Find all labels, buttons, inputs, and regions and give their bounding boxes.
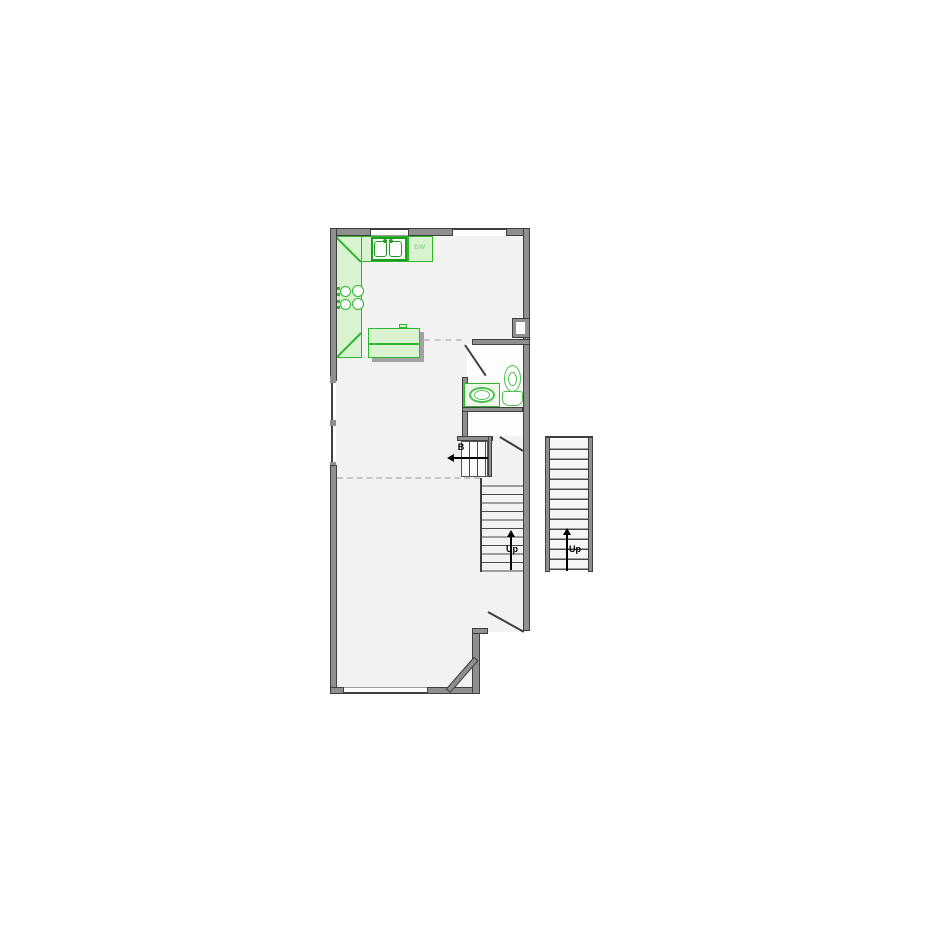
dishwasher-label: DW bbox=[407, 245, 433, 252]
window-mullion bbox=[330, 376, 336, 383]
cooktop-burner bbox=[352, 298, 364, 310]
main-stair-treads bbox=[481, 478, 523, 573]
exterior-wall-bottom bbox=[330, 687, 344, 694]
cooktop-burner bbox=[352, 285, 364, 297]
island-counter-split bbox=[369, 343, 419, 345]
chase-bump-out-inner bbox=[516, 322, 525, 334]
window-icon bbox=[371, 228, 408, 236]
cooktop-knob-icon bbox=[337, 287, 340, 290]
sink-faucet-icon bbox=[389, 239, 393, 243]
cooktop-burner bbox=[340, 286, 351, 297]
exterior-wall-left bbox=[330, 465, 337, 694]
bathroom-wall-top bbox=[472, 339, 530, 345]
exterior-stair-top-line bbox=[545, 436, 593, 438]
exterior-stair-wall-right bbox=[588, 437, 593, 572]
main-stair-up-arrow-head-icon bbox=[507, 530, 515, 537]
basement-label: B bbox=[455, 442, 467, 452]
kitchen-dining-divider bbox=[424, 339, 462, 341]
toilet-tank-lid-inner bbox=[508, 372, 517, 386]
sink-faucet-icon bbox=[383, 239, 387, 243]
entry-porch-exterior bbox=[480, 632, 523, 687]
dining-living-divider bbox=[337, 477, 480, 479]
cooktop-knob-icon bbox=[337, 306, 340, 309]
sink-basin-right bbox=[389, 241, 402, 257]
vanity-sink-basin-inner bbox=[474, 390, 490, 400]
sink-basin-left bbox=[374, 241, 387, 257]
exterior-wall-right bbox=[523, 228, 530, 631]
entry-notch-cap bbox=[472, 628, 488, 634]
window-icon bbox=[385, 687, 427, 694]
kitchen-counter-left bbox=[336, 236, 362, 358]
basement-arrow-line bbox=[453, 457, 488, 459]
wall-opening-line bbox=[453, 228, 506, 230]
window-icon bbox=[344, 687, 385, 694]
cooktop-knob-icon bbox=[337, 293, 340, 296]
floor-plan-canvas: DW bbox=[0, 0, 925, 925]
window-mullion bbox=[330, 420, 336, 426]
closet-floor bbox=[467, 412, 523, 436]
basement-arrow-head-icon bbox=[447, 454, 454, 462]
island-faucet-icon bbox=[399, 324, 407, 328]
exterior-stair-up-label: Up bbox=[564, 544, 586, 554]
cooktop-knob-icon bbox=[337, 300, 340, 303]
exterior-wall-top bbox=[408, 228, 453, 236]
cooktop-burner bbox=[340, 299, 351, 310]
main-floor bbox=[336, 236, 523, 687]
basement-stair-wall bbox=[488, 436, 492, 477]
toilet-base bbox=[502, 391, 523, 406]
exterior-stair-up-arrow-head-icon bbox=[563, 528, 571, 535]
bathroom-wall-bottom bbox=[462, 407, 523, 412]
main-stair-up-label: Up bbox=[501, 544, 523, 554]
exterior-wall-left bbox=[330, 228, 337, 381]
